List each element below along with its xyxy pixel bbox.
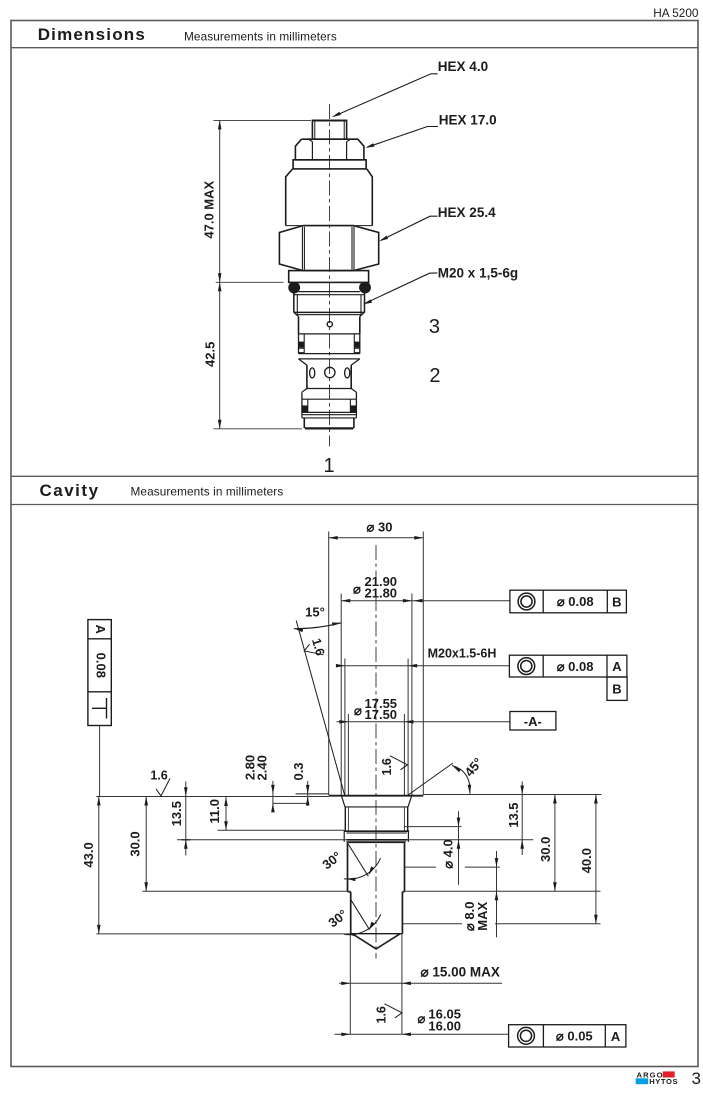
svg-text:⌀: ⌀	[354, 703, 362, 718]
svg-text:11.0: 11.0	[207, 799, 222, 824]
svg-text:⌀: ⌀	[418, 1011, 426, 1026]
svg-text:⌀ 30: ⌀ 30	[367, 520, 393, 535]
svg-text:15°: 15°	[305, 605, 325, 620]
svg-text:⌀ 4.0: ⌀ 4.0	[441, 839, 456, 869]
svg-text:43.0: 43.0	[81, 842, 96, 867]
svg-text:13.5: 13.5	[169, 801, 184, 826]
svg-text:⌀ 0.08: ⌀ 0.08	[557, 594, 594, 609]
svg-text:13.5: 13.5	[506, 802, 521, 827]
svg-text:-A-: -A-	[524, 714, 542, 729]
svg-text:HA 5200: HA 5200	[653, 6, 699, 20]
svg-text:A: A	[611, 1029, 621, 1044]
svg-text:21.80: 21.80	[365, 586, 398, 601]
svg-text:45°: 45°	[461, 755, 485, 780]
svg-text:M20x1.5-6H: M20x1.5-6H	[428, 647, 497, 661]
svg-text:B: B	[612, 595, 621, 610]
svg-text:1.6: 1.6	[375, 1006, 389, 1023]
svg-text:HEX 17.0: HEX 17.0	[439, 113, 497, 128]
svg-text:30°: 30°	[325, 906, 350, 930]
svg-text:1: 1	[323, 455, 334, 477]
svg-text:3: 3	[692, 1069, 701, 1088]
svg-text:⌀: ⌀	[353, 582, 361, 597]
svg-text:⌀ 0.08: ⌀ 0.08	[557, 659, 594, 674]
svg-text:2: 2	[429, 365, 440, 387]
svg-text:Dimensions: Dimensions	[38, 25, 146, 44]
svg-text:HYTOS: HYTOS	[649, 1077, 678, 1086]
svg-text:2.40: 2.40	[254, 755, 269, 780]
svg-text:B: B	[612, 682, 621, 697]
svg-text:0.3: 0.3	[291, 762, 306, 780]
svg-text:40.0: 40.0	[579, 848, 594, 873]
svg-text:30.0: 30.0	[127, 831, 142, 856]
svg-text:Measurements in millimeters: Measurements in millimeters	[184, 29, 337, 43]
svg-text:3: 3	[429, 316, 440, 338]
svg-text:M20 x 1,5-6g: M20 x 1,5-6g	[438, 265, 518, 280]
svg-text:30°: 30°	[319, 848, 344, 872]
svg-text:17.50: 17.50	[365, 707, 398, 722]
svg-text:1.6: 1.6	[150, 768, 167, 782]
svg-text:Cavity: Cavity	[40, 481, 100, 500]
svg-text:HEX 4.0: HEX 4.0	[438, 59, 488, 74]
svg-text:HEX 25.4: HEX 25.4	[438, 205, 496, 220]
svg-text:0.08: 0.08	[93, 653, 108, 678]
svg-text:A: A	[93, 625, 108, 635]
svg-text:A: A	[612, 659, 622, 674]
svg-text:42.5: 42.5	[203, 342, 218, 367]
svg-text:Measurements in millimeters: Measurements in millimeters	[131, 485, 284, 499]
svg-text:⌀ 0.05: ⌀ 0.05	[556, 1029, 593, 1044]
svg-text:30.0: 30.0	[538, 837, 553, 862]
svg-text:⌀ 15.00 MAX: ⌀ 15.00 MAX	[421, 965, 500, 980]
svg-text:16.00: 16.00	[428, 1018, 461, 1033]
svg-text:47.0 MAX: 47.0 MAX	[202, 180, 217, 238]
svg-text:MAX: MAX	[475, 902, 490, 931]
svg-text:1.6: 1.6	[380, 758, 394, 775]
